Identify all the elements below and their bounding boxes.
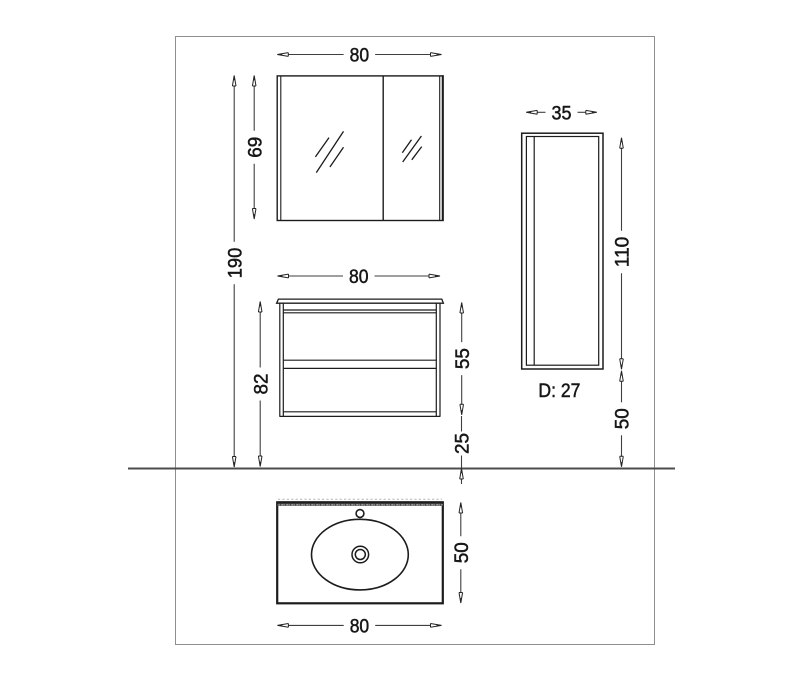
svg-text:110: 110: [612, 237, 634, 268]
svg-text:80: 80: [350, 45, 370, 67]
svg-text:69: 69: [244, 137, 266, 158]
svg-text:35: 35: [552, 103, 572, 125]
svg-text:82: 82: [250, 374, 272, 395]
svg-text:25: 25: [452, 433, 474, 454]
svg-text:55: 55: [452, 348, 474, 369]
svg-text:50: 50: [612, 408, 634, 429]
svg-text:80: 80: [350, 616, 370, 638]
svg-text:80: 80: [349, 266, 369, 288]
svg-text:50: 50: [451, 542, 473, 563]
svg-text:D: 27: D: 27: [538, 380, 580, 402]
svg-text:190: 190: [224, 248, 246, 279]
